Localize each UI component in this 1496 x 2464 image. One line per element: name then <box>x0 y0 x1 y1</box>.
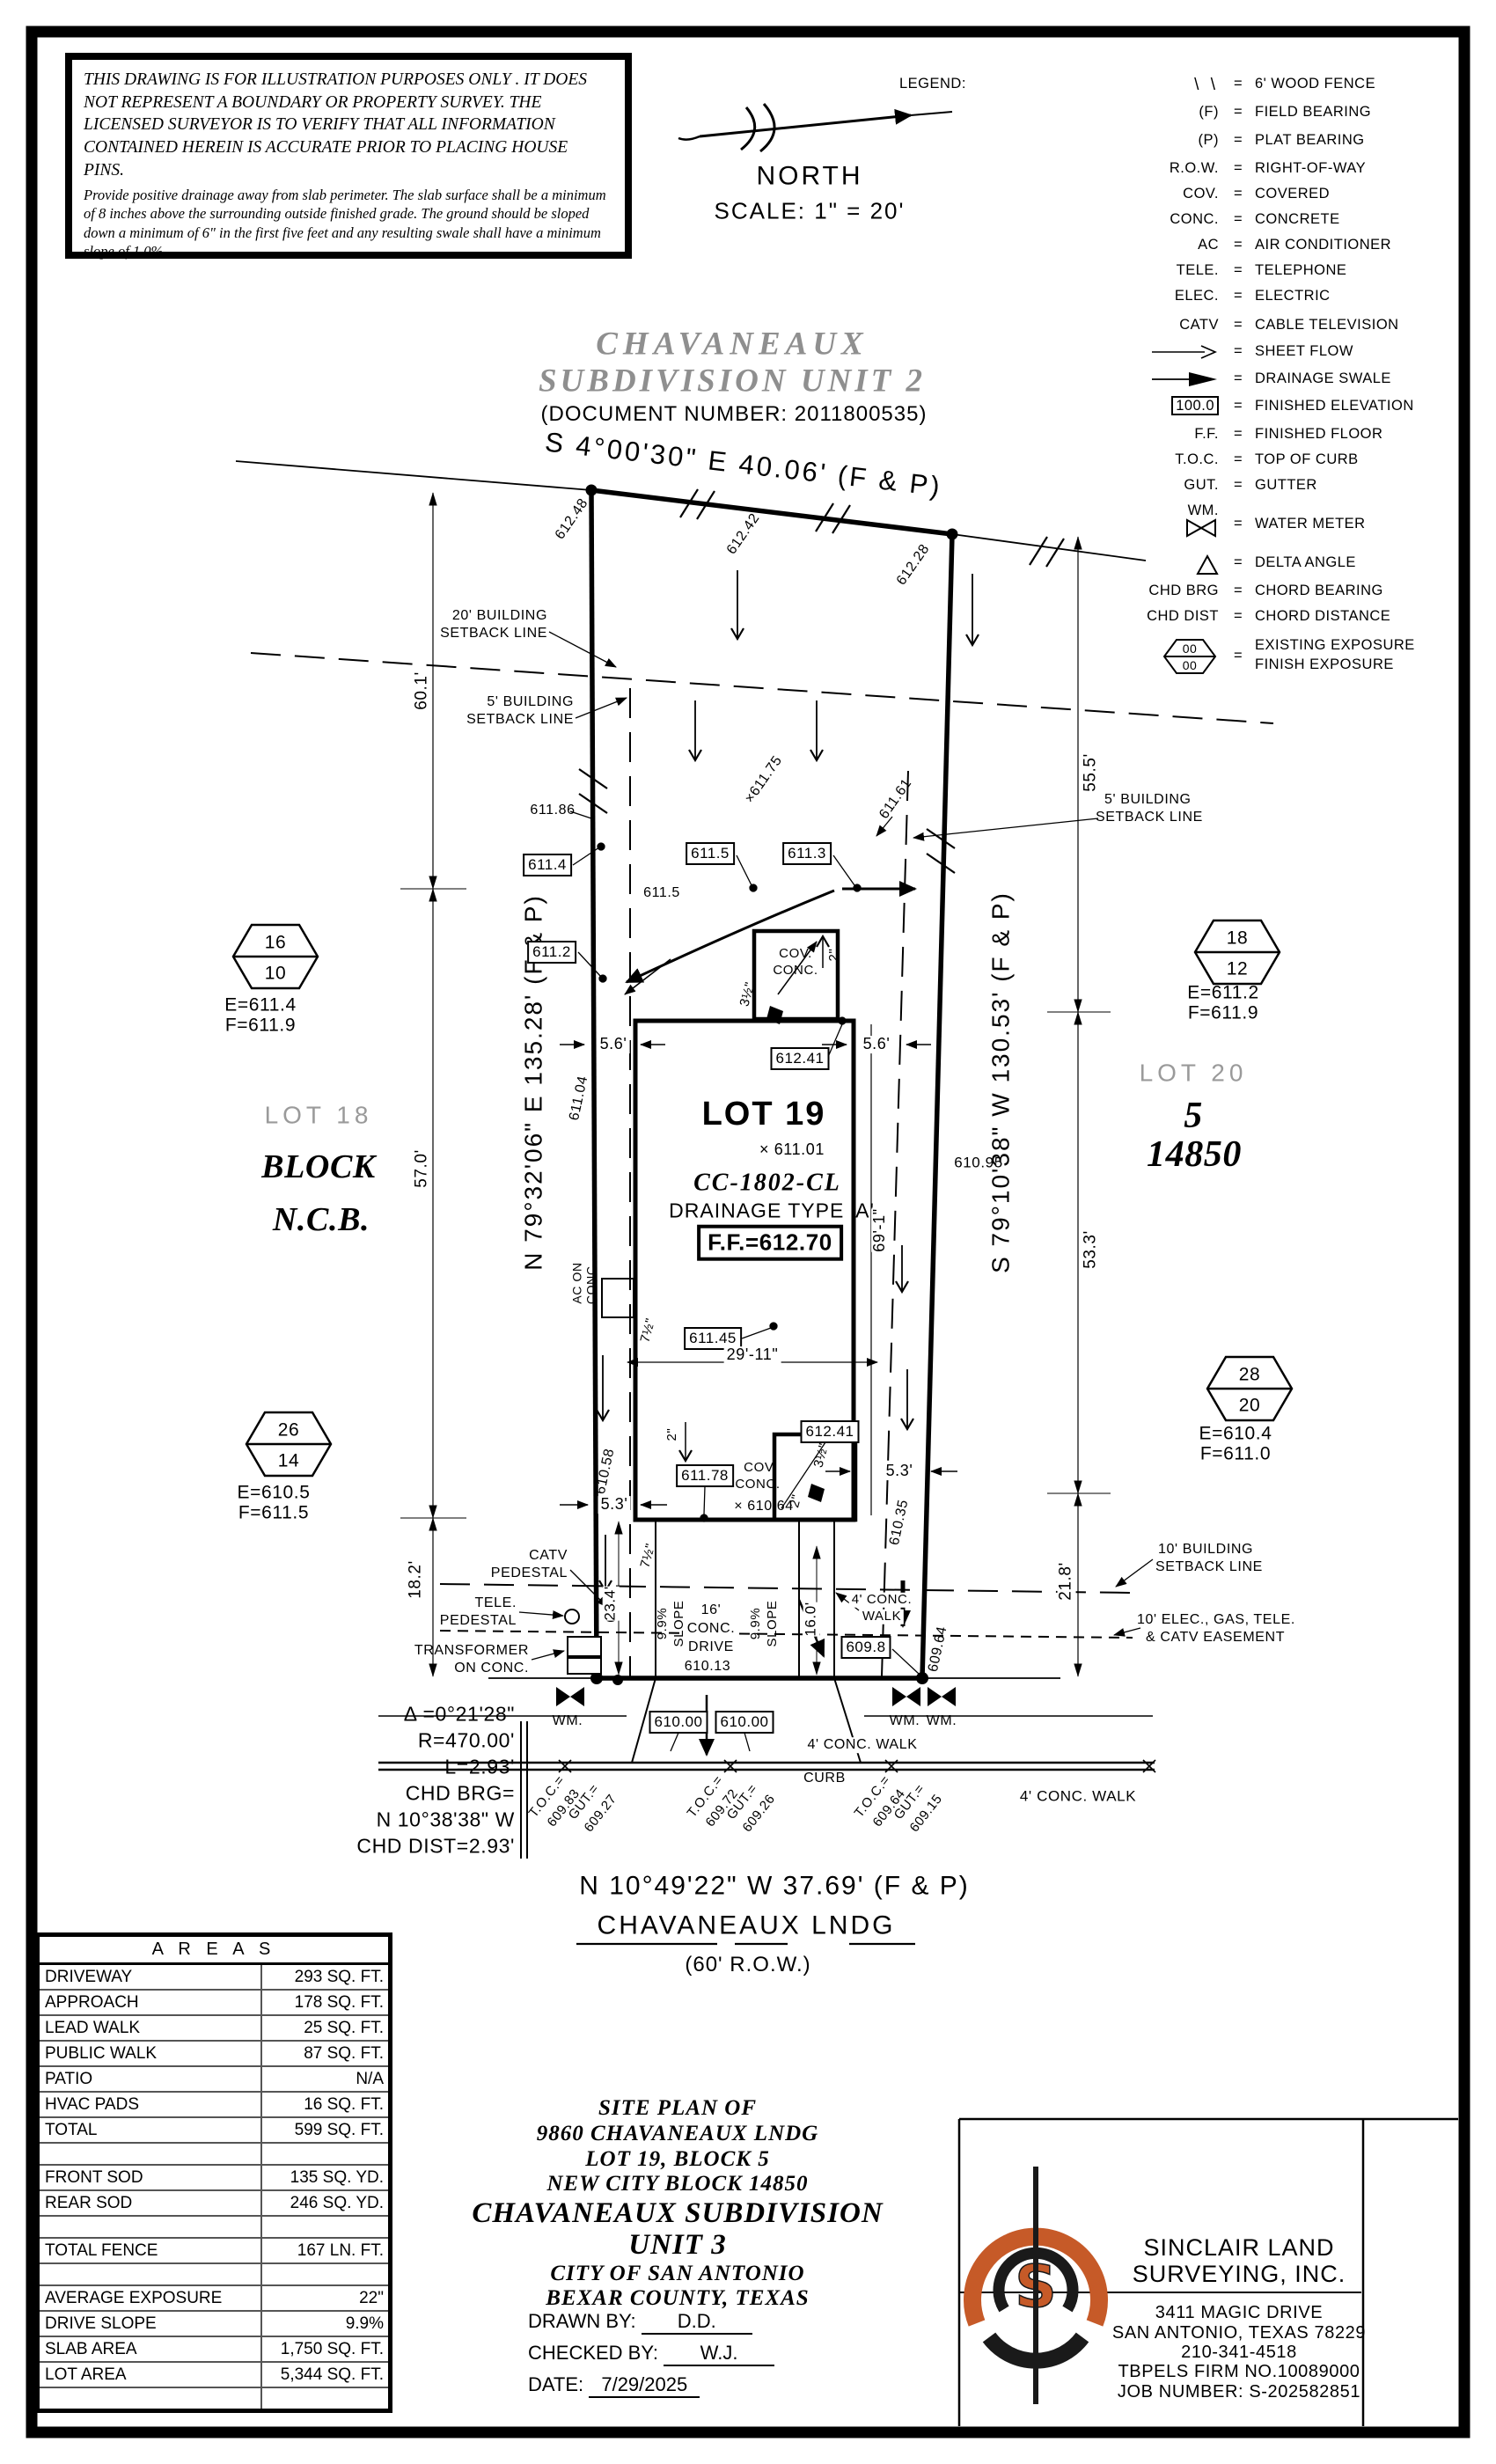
elec-abbrev: ELEC. <box>1100 288 1219 304</box>
disclaimer-note: THIS DRAWING IS FOR ILLUSTRATION PURPOSE… <box>84 69 612 264</box>
elev-box-611-5: 611.5 <box>686 842 735 865</box>
walk-label-street: 4' CONC. WALK <box>805 1737 920 1753</box>
bearing-bottom: N 10°49'22" W 37.69' (F & P) <box>579 1872 970 1901</box>
legend-row: =DELTA ANGLE <box>1100 554 1470 577</box>
slope-word-1: SLOPE <box>672 1600 687 1646</box>
water-meter-icon <box>928 1687 956 1706</box>
equals: = <box>1234 186 1243 202</box>
legend-text: CONCRETE <box>1255 211 1340 228</box>
ac-abbrev: AC <box>1100 237 1219 253</box>
cov-front-1: COV. <box>744 1461 777 1476</box>
hex3-finish: F=611.5 <box>238 1502 309 1522</box>
dim-57-0: 57.0' <box>414 1149 432 1188</box>
hex3-existing: E=610.5 <box>237 1482 310 1502</box>
subdivision-title-1: CHAVANEAUX <box>596 327 868 363</box>
plat-bearing-symbol: (P) <box>1100 132 1219 149</box>
table-row: PUBLIC WALK87 SQ. FT. <box>40 2042 388 2067</box>
legend-text: CABLE TELEVISION <box>1255 317 1399 334</box>
easement-label-1: 10' ELEC., GAS, TELE. <box>1137 1612 1295 1628</box>
hex4-bottom: 20 <box>1239 1395 1261 1415</box>
curve-chd-brg: N 10°38'38" W <box>377 1808 515 1830</box>
setback5-right-label-2: SETBACK LINE <box>1096 810 1203 825</box>
equals: = <box>1234 317 1243 334</box>
legend-title: LEGEND: <box>899 76 966 92</box>
table-row: REAR SOD246 SQ. YD. <box>40 2191 388 2217</box>
row-value: 5,344 SQ. FT. <box>262 2363 388 2387</box>
setback5-left-label-2: SETBACK LINE <box>466 712 574 728</box>
dim-16-0: 16.0' <box>803 1602 820 1636</box>
walk-label-street-2: 4' CONC. WALK <box>1020 1789 1136 1806</box>
row-label: APPROACH <box>40 1991 262 2014</box>
row-label <box>40 2264 262 2284</box>
hex1-existing: E=611.4 <box>224 994 296 1015</box>
hex3-top: 26 <box>278 1419 300 1440</box>
chd-brg-abbrev: CHD BRG <box>1100 583 1219 599</box>
water-meter-icon: WM. <box>1100 503 1219 540</box>
lot20-label: LOT 20 <box>1140 1060 1248 1088</box>
elev-box-610-00-b: 610.00 <box>715 1711 774 1734</box>
spot-610-64: × 610.64 <box>734 1499 794 1514</box>
north-label: NORTH <box>756 162 862 191</box>
company-job-number: JOB NUMBER: S-202582851 <box>1118 2382 1360 2402</box>
legend-row: CHD BRG=CHORD BEARING <box>1100 583 1470 605</box>
block-number: 5 <box>1184 1096 1203 1136</box>
table-row-blank <box>40 2144 388 2166</box>
row-label <box>40 2217 262 2237</box>
dim-5-6-right: 5.6' <box>861 1036 893 1053</box>
legend-row: (F)=FIELD BEARING <box>1100 104 1470 127</box>
hex4-finish: F=611.0 <box>1200 1443 1271 1463</box>
easement-label-2: & CATV EASEMENT <box>1146 1630 1285 1646</box>
hex1-top: 16 <box>265 932 287 952</box>
finished-elevation-symbol: 100.0 <box>1100 398 1219 414</box>
county-state: BEXAR COUNTY, TEXAS <box>422 2286 933 2312</box>
table-row: HVAC PADS16 SQ. FT. <box>40 2093 388 2118</box>
spot-611-01: × 611.01 <box>759 1141 825 1159</box>
street-row-width: (60' R.O.W.) <box>685 1954 810 1976</box>
spot-611-5: 611.5 <box>643 885 680 901</box>
curve-chd-brg-label: CHD BRG= <box>406 1782 515 1804</box>
table-row-blank <box>40 2217 388 2239</box>
row-label: SLAB AREA <box>40 2337 262 2361</box>
elev-box-611-4: 611.4 <box>523 854 572 876</box>
setback20-label-2: SETBACK LINE <box>440 626 547 642</box>
wood-fence-icon: \ \ <box>1100 76 1219 95</box>
row-label <box>40 2144 262 2164</box>
water-meter-icon <box>556 1687 584 1706</box>
elev-box-611-78: 611.78 <box>676 1464 734 1487</box>
dim-2-mid: 2" <box>665 1428 680 1441</box>
site-address: 9860 CHAVANEAUX LNDG <box>422 2122 933 2147</box>
block-word: BLOCK <box>261 1149 376 1186</box>
row-value: N/A <box>262 2067 388 2091</box>
table-row: DRIVE SLOPE9.9% <box>40 2312 388 2337</box>
dim-60-1: 60.1' <box>414 671 432 710</box>
legend-text: FINISHED FLOOR <box>1255 426 1382 443</box>
disclaimer-paragraph-1: THIS DRAWING IS FOR ILLUSTRATION PURPOSE… <box>84 69 612 182</box>
row-label: DRIVEWAY <box>40 1965 262 1989</box>
cov-rear-1: COV. <box>779 947 812 962</box>
ff-abbrev: F.F. <box>1100 426 1219 443</box>
cov-rear-2: CONC. <box>773 964 818 979</box>
spot-610-95: 610.95 <box>954 1155 1003 1172</box>
row-value: 167 LN. FT. <box>262 2239 388 2262</box>
equals: = <box>1234 104 1243 121</box>
exposure-hex-icon: 00 00 <box>1100 635 1219 682</box>
ac-label-2: CONC. <box>584 1262 598 1304</box>
curve-chd-dist: CHD DIST=2.93' <box>356 1835 515 1857</box>
transformer-label-1: TRANSFORMER <box>414 1643 529 1659</box>
legend-row: AC=AIR CONDITIONER <box>1100 237 1470 260</box>
transformer-icon <box>568 1637 601 1656</box>
row-value <box>262 2388 388 2409</box>
elev-box-610-00-a: 610.00 <box>649 1711 708 1734</box>
date-row: DATE: 7/29/2025 <box>493 2373 862 2398</box>
equals: = <box>1234 76 1243 92</box>
legend-row: GUT.=GUTTER <box>1100 477 1470 500</box>
row-label: FRONT SOD <box>40 2166 262 2189</box>
chd-dist-abbrev: CHD DIST <box>1100 608 1219 625</box>
legend-row: WM. =WATER METER <box>1100 503 1470 547</box>
ncb-word: N.C.B. <box>273 1202 370 1239</box>
drive-spot-610-13: 610.13 <box>682 1659 734 1675</box>
legend-text: FIELD BEARING <box>1255 104 1371 121</box>
delta-angle-icon <box>1100 554 1219 580</box>
row-label: PATIO <box>40 2067 262 2091</box>
cov-front-2: CONC. <box>735 1478 780 1492</box>
equals: = <box>1234 211 1243 228</box>
row-label: HVAC PADS <box>40 2093 262 2116</box>
street-name: CHAVANEAUX LNDG <box>598 1911 896 1940</box>
catv-pedestal-icon <box>565 1610 579 1624</box>
areas-title: A R E A S <box>40 1937 388 1965</box>
legend-row: COV.=COVERED <box>1100 186 1470 209</box>
legend-row: ELEC.=ELECTRIC <box>1100 288 1470 311</box>
drawn-by-value: D.D. <box>642 2310 752 2335</box>
drawn-by-row: DRAWN BY: D.D. <box>493 2310 862 2335</box>
row-value: 1,750 SQ. FT. <box>262 2337 388 2361</box>
table-row-blank <box>40 2388 388 2409</box>
checked-by-row: CHECKED BY: W.J. <box>493 2342 862 2366</box>
row-label: TOTAL FENCE <box>40 2239 262 2262</box>
dim-69-1: 69'-1" <box>871 1208 889 1251</box>
walk-side-label-1: 4' CONC. <box>849 1593 915 1608</box>
company-name-2: SURVEYING, INC. <box>1133 2262 1346 2288</box>
document-number: (DOCUMENT NUMBER: 2011800535) <box>541 403 928 426</box>
legend-row: T.O.C.=TOP OF CURB <box>1100 451 1470 474</box>
company-address-1: 3411 MAGIC DRIVE <box>1155 2303 1323 2322</box>
legend-row: (P)=PLAT BEARING <box>1100 132 1470 155</box>
equals: = <box>1234 583 1243 599</box>
title-block: SITE PLAN OF 9860 CHAVANEAUX LNDG LOT 19… <box>422 2096 933 2312</box>
legend-text: 6' WOOD FENCE <box>1255 76 1375 92</box>
row-value: 87 SQ. FT. <box>262 2042 388 2065</box>
elev-box-609-8: 609.8 <box>840 1636 891 1659</box>
lot19-label: LOT 19 <box>702 1096 826 1133</box>
row-value: 135 SQ. YD. <box>262 2166 388 2189</box>
legend-row: =DRAINAGE SWALE <box>1100 370 1470 393</box>
dim-5-3-right: 5.3' <box>884 1463 916 1480</box>
equals: = <box>1234 648 1243 664</box>
row-value: 9.9% <box>262 2312 388 2336</box>
equals: = <box>1234 262 1243 279</box>
curve-delta: Δ =0°21'28" <box>404 1703 515 1725</box>
legend-row: 00 00 = EXISTING EXPOSURE FINISH EXPOSUR… <box>1100 635 1470 685</box>
legend-text: DRAINAGE SWALE <box>1255 370 1391 387</box>
elev-box-612-41-b: 612.41 <box>801 1420 860 1443</box>
company-address-2: SAN ANTONIO, TEXAS 78229 <box>1112 2323 1366 2343</box>
legend-row: =SHEET FLOW <box>1100 343 1470 366</box>
wm-label-1: WM. <box>553 1713 583 1729</box>
flow-arrows <box>603 570 972 1755</box>
hex2-top: 18 <box>1227 928 1249 948</box>
legend-text: TOP OF CURB <box>1255 451 1359 468</box>
curb-label: CURB <box>803 1771 846 1786</box>
row-label: LEAD WALK <box>40 2016 262 2040</box>
row-value: 293 SQ. FT. <box>262 1965 388 1989</box>
catv-abbrev: CATV <box>1100 317 1219 334</box>
row-value: 599 SQ. FT. <box>262 2118 388 2142</box>
legend-text: TELEPHONE <box>1255 262 1346 279</box>
ncb-number: 14850 <box>1147 1134 1242 1175</box>
legend-text: SHEET FLOW <box>1255 343 1353 360</box>
legend-row: R.O.W.=RIGHT-OF-WAY <box>1100 160 1470 183</box>
table-row: TOTAL599 SQ. FT. <box>40 2118 388 2144</box>
hex4-top: 28 <box>1239 1364 1261 1384</box>
slope-pct-1: 9.9% <box>656 1608 671 1640</box>
table-row: LEAD WALK25 SQ. FT. <box>40 2016 388 2042</box>
table-row: DRIVEWAY293 SQ. FT. <box>40 1965 388 1991</box>
setback5-left-label-1: 5' BUILDING <box>487 694 574 710</box>
company-name-1: SINCLAIR LAND <box>1143 2235 1334 2262</box>
dim-2-rear: 2" <box>827 949 842 962</box>
slope-word-2: SLOPE <box>766 1600 781 1646</box>
drainage-swale-icon <box>1100 370 1219 391</box>
company-firm-number: TBPELS FIRM NO.10089000 <box>1118 2362 1360 2381</box>
dim-5-6-left: 5.6' <box>598 1036 630 1053</box>
dim-29-11: 29'-11" <box>724 1346 781 1364</box>
legend-text: ELECTRIC <box>1255 288 1331 304</box>
equals: = <box>1234 398 1243 414</box>
date-label: DATE: <box>528 2373 583 2395</box>
table-row: TOTAL FENCE167 LN. FT. <box>40 2239 388 2264</box>
row-value: 178 SQ. FT. <box>262 1991 388 2014</box>
elev-box-612-41-a: 612.41 <box>771 1047 830 1070</box>
wm-label-2: WM. <box>890 1713 920 1729</box>
elev-box-611-2: 611.2 <box>527 941 576 964</box>
date-value: 7/29/2025 <box>589 2373 700 2398</box>
hex3-bottom: 14 <box>278 1450 300 1470</box>
row-label: REAR SOD <box>40 2191 262 2215</box>
hex1-finish: F=611.9 <box>225 1015 296 1035</box>
gut-abbrev: GUT. <box>1100 477 1219 494</box>
legend-row: 100.0 =FINISHED ELEVATION <box>1100 398 1470 421</box>
legend-text: CHORD BEARING <box>1255 583 1383 599</box>
row-label: DRIVE SLOPE <box>40 2312 262 2336</box>
hex-top-sample: 00 <box>1183 642 1198 656</box>
row-label: AVERAGE EXPOSURE <box>40 2286 262 2310</box>
spot-611-86: 611.86 <box>530 803 575 818</box>
cov-abbrev: COV. <box>1100 186 1219 202</box>
equals: = <box>1234 451 1243 468</box>
walk-side-label-2: WALK <box>860 1610 904 1624</box>
finished-floor: F.F.=612.70 <box>697 1225 843 1261</box>
equals: = <box>1234 160 1243 177</box>
hex1-bottom: 10 <box>265 963 287 983</box>
curve-length: L=2.93' <box>444 1756 515 1778</box>
table-row: SLAB AREA1,750 SQ. FT. <box>40 2337 388 2363</box>
hex2-bottom: 12 <box>1227 958 1249 979</box>
drive-label-3: DRIVE <box>686 1639 737 1655</box>
row-value: 22" <box>262 2286 388 2310</box>
legend-text: DELTA ANGLE <box>1255 554 1356 571</box>
hex-bottom-sample: 00 <box>1183 658 1198 672</box>
scale-label: SCALE: 1" = 20' <box>715 199 906 224</box>
equals: = <box>1234 426 1243 443</box>
row-label: PUBLIC WALK <box>40 2042 262 2065</box>
site-plan-sheet: S THIS DRAWING IS FOR ILLUSTRATION PURPO… <box>0 0 1496 2464</box>
wm-abbrev: WM. <box>1188 502 1219 518</box>
catv-pedestal-label-2: PEDESTAL <box>491 1566 568 1581</box>
setback10-label-1: 10' BUILDING <box>1158 1542 1253 1558</box>
plan-code: CC-1802-CL <box>693 1170 841 1198</box>
row-value: 16 SQ. FT. <box>262 2093 388 2116</box>
transformer-label-2: ON CONC. <box>454 1661 529 1676</box>
equals: = <box>1234 132 1243 149</box>
dim-55-5: 55.5' <box>1082 753 1101 792</box>
legend-row: CATV=CABLE TELEVISION <box>1100 317 1470 340</box>
equals: = <box>1234 516 1243 532</box>
curve-radius: R=470.00' <box>418 1729 515 1751</box>
legend-text: EXISTING EXPOSURE <box>1255 637 1415 654</box>
setback5-right-label-1: 5' BUILDING <box>1104 792 1192 808</box>
dim-5-3-left: 5.3' <box>598 1496 631 1514</box>
table-row: FRONT SOD135 SQ. YD. <box>40 2166 388 2191</box>
conc-abbrev: CONC. <box>1100 211 1219 228</box>
equals: = <box>1234 608 1243 625</box>
ac-label-1: AC ON <box>570 1262 583 1303</box>
boxed-elevation-sample: 100.0 <box>1171 396 1219 415</box>
hex2-finish: F=611.9 <box>1188 1002 1258 1023</box>
row-value <box>262 2217 388 2237</box>
subdivision-title-2: SUBDIVISION UNIT 2 <box>539 364 926 400</box>
dim-18-2: 18.2' <box>407 1560 426 1599</box>
legend-row: CHD DIST=CHORD DISTANCE <box>1100 608 1470 631</box>
site-plan-of: SITE PLAN OF <box>422 2096 933 2122</box>
legend-row-fence: LEGEND: \ \ = 6' WOOD FENCE <box>1100 76 1470 99</box>
catv-pedestal-label-1: CATV <box>529 1548 568 1564</box>
table-row: APPROACH178 SQ. FT. <box>40 1991 388 2016</box>
legend-text: RIGHT-OF-WAY <box>1255 160 1366 177</box>
slope-pct-2: 9.9% <box>749 1608 764 1640</box>
setback20-label-1: 20' BUILDING <box>452 608 547 624</box>
equals: = <box>1234 554 1243 571</box>
legend-text: FINISHED ELEVATION <box>1255 398 1414 414</box>
legend-text: AIR CONDITIONER <box>1255 237 1391 253</box>
areas-table: A R E A S DRIVEWAY293 SQ. FT. APPROACH17… <box>35 1932 392 2413</box>
equals: = <box>1234 343 1243 360</box>
row-value: 25 SQ. FT. <box>262 2016 388 2040</box>
dim-21-8: 21.8' <box>1058 1562 1076 1601</box>
wm-label-3: WM. <box>927 1713 957 1729</box>
hex2-existing: E=611.2 <box>1187 982 1258 1002</box>
drive-label-1: 16' <box>699 1602 724 1618</box>
row-value: 246 SQ. YD. <box>262 2191 388 2215</box>
checked-by-label: CHECKED BY: <box>528 2342 658 2364</box>
elev-box-611-3: 611.3 <box>782 842 832 865</box>
setback10-label-2: SETBACK LINE <box>1155 1559 1263 1575</box>
row-label: LOT AREA <box>40 2363 262 2387</box>
lot18-label: LOT 18 <box>265 1103 373 1130</box>
equals: = <box>1234 288 1243 304</box>
hex4-existing: E=610.4 <box>1199 1423 1272 1443</box>
company-logo: S <box>972 2167 1099 2404</box>
lot-block: LOT 19, BLOCK 5 <box>422 2147 933 2173</box>
legend-text: COVERED <box>1255 186 1330 202</box>
legend-text: PLAT BEARING <box>1255 132 1365 149</box>
drainage-type: DRAINAGE TYPE 'A' <box>669 1199 875 1221</box>
checked-by-value: W.J. <box>664 2342 774 2366</box>
new-city-block: NEW CITY BLOCK 14850 <box>422 2172 933 2197</box>
row-value <box>262 2144 388 2164</box>
legend-row: CONC.=CONCRETE <box>1100 211 1470 234</box>
tele-abbrev: TELE. <box>1100 262 1219 279</box>
row-label: TOTAL <box>40 2118 262 2142</box>
field-bearing-symbol: (F) <box>1100 104 1219 121</box>
dim-23-4: 23.4' <box>603 1586 620 1620</box>
legend-text: GUTTER <box>1255 477 1317 494</box>
row-value <box>262 2264 388 2284</box>
toc-abbrev: T.O.C. <box>1100 451 1219 468</box>
subdivision-unit: UNIT 3 <box>422 2229 933 2261</box>
legend-row: TELE.=TELEPHONE <box>1100 262 1470 285</box>
table-row-blank <box>40 2264 388 2286</box>
dim-53-3: 53.3' <box>1082 1230 1101 1269</box>
equals: = <box>1234 370 1243 387</box>
disclaimer-paragraph-2: Provide positive drainage away from slab… <box>84 186 612 261</box>
sheet-flow-icon <box>1100 343 1219 363</box>
legend-text: CHORD DISTANCE <box>1255 608 1390 625</box>
title-block-meta: DRAWN BY: D.D. CHECKED BY: W.J. DATE: 7/… <box>493 2310 862 2405</box>
drive-label-2: CONC. <box>685 1621 738 1637</box>
north-arrow-icon <box>678 104 952 151</box>
company-phone: 210-341-4518 <box>1181 2343 1297 2362</box>
tele-pedestal-label-1: TELE. <box>475 1595 517 1611</box>
bearing-right: S 79°10'38" W 130.53' (F & P) <box>988 891 1016 1273</box>
city: CITY OF SAN ANTONIO <box>422 2262 933 2287</box>
water-meter-icon <box>892 1687 920 1706</box>
row-label <box>40 2388 262 2409</box>
table-row: LOT AREA5,344 SQ. FT. <box>40 2363 388 2388</box>
equals: = <box>1234 237 1243 253</box>
table-row: PATION/A <box>40 2067 388 2093</box>
tele-pedestal-label-2: PEDESTAL <box>440 1613 517 1629</box>
row-abbrev: R.O.W. <box>1100 160 1219 177</box>
drawn-by-label: DRAWN BY: <box>528 2310 636 2332</box>
legend-row: F.F.=FINISHED FLOOR <box>1100 426 1470 449</box>
subdivision-name: CHAVANEAUX SUBDIVISION <box>422 2197 933 2229</box>
legend-text: FINISH EXPOSURE <box>1255 656 1394 673</box>
equals: = <box>1234 477 1243 494</box>
ac-pad <box>602 1279 634 1317</box>
table-row: AVERAGE EXPOSURE22" <box>40 2286 388 2312</box>
legend-text: WATER METER <box>1255 516 1366 532</box>
